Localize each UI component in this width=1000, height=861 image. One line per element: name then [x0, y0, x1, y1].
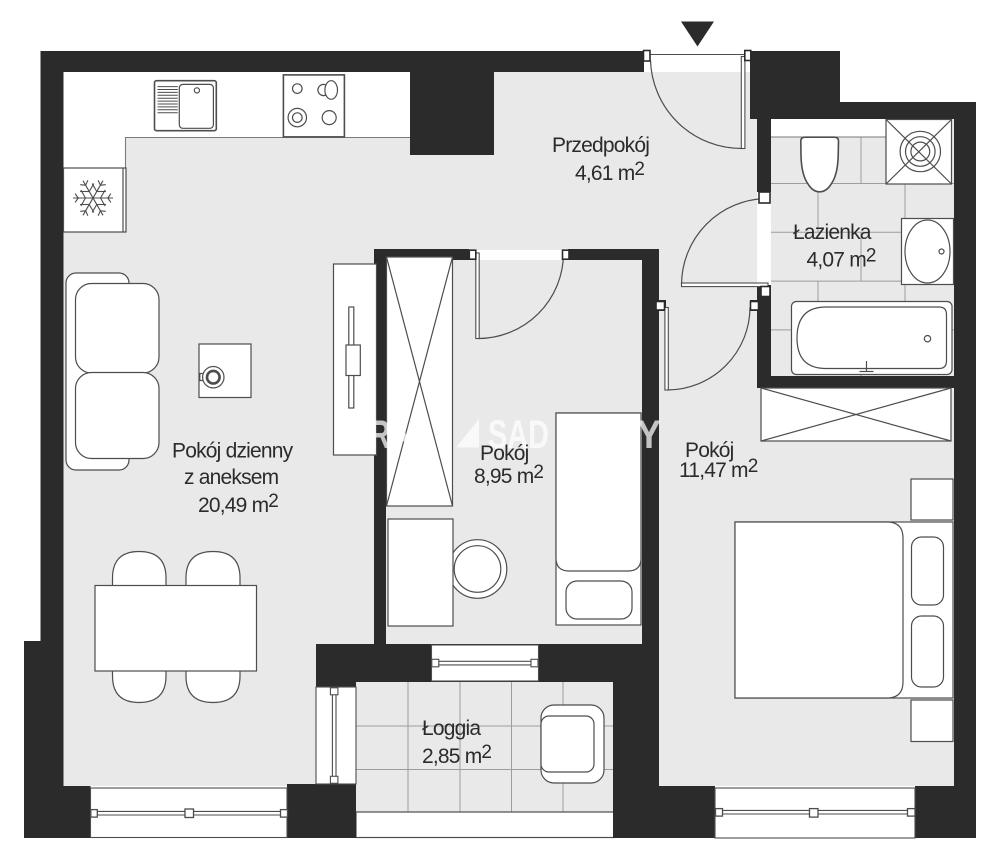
svg-text:Przedpokój: Przedpokój — [552, 134, 649, 157]
svg-text:4,61 m2: 4,61 m2 — [575, 159, 644, 185]
svg-text:11,47 m2: 11,47 m2 — [679, 456, 758, 482]
svg-text:4,07 m2: 4,07 m2 — [807, 246, 876, 272]
svg-text:Łoggia: Łoggia — [422, 717, 481, 740]
svg-text:Łazienka: Łazienka — [793, 221, 872, 244]
svg-text:z aneksem: z aneksem — [184, 466, 279, 489]
svg-text:Y: Y — [637, 413, 661, 457]
svg-text:8,95 m2: 8,95 m2 — [474, 462, 543, 488]
svg-text:Pokój dzienny: Pokój dzienny — [172, 440, 294, 463]
svg-text:RA: RA — [370, 413, 410, 457]
svg-text:Pokój: Pokój — [480, 442, 529, 465]
svg-text:20,49 m2: 20,49 m2 — [198, 491, 278, 517]
svg-text:2,85 m2: 2,85 m2 — [422, 742, 491, 768]
